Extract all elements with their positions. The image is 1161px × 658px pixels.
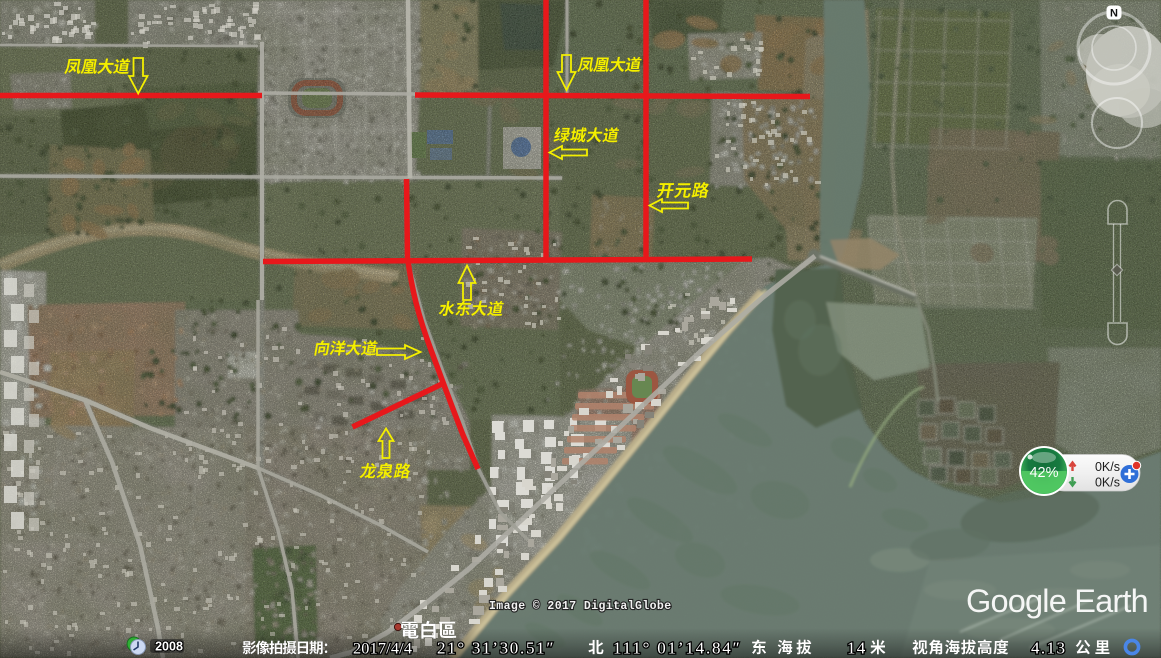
svg-text:14: 14 xyxy=(847,639,866,658)
svg-text:21° 31’30.51″: 21° 31’30.51″ xyxy=(437,639,555,658)
svg-text:42%: 42% xyxy=(1029,465,1058,481)
svg-text:0K/s: 0K/s xyxy=(1095,476,1120,490)
svg-text:Google Earth: Google Earth xyxy=(966,583,1148,619)
svg-text:111° 01’14.84″: 111° 01’14.84″ xyxy=(613,639,741,658)
svg-text:2008: 2008 xyxy=(155,640,183,654)
svg-text:4.13: 4.13 xyxy=(1031,639,1066,658)
svg-text:Image © 2017 DigitalGlobe: Image © 2017 DigitalGlobe xyxy=(489,600,672,613)
svg-text:0K/s: 0K/s xyxy=(1095,460,1120,474)
svg-text:2017/4/4: 2017/4/4 xyxy=(353,640,412,658)
svg-text:N: N xyxy=(1110,8,1118,20)
